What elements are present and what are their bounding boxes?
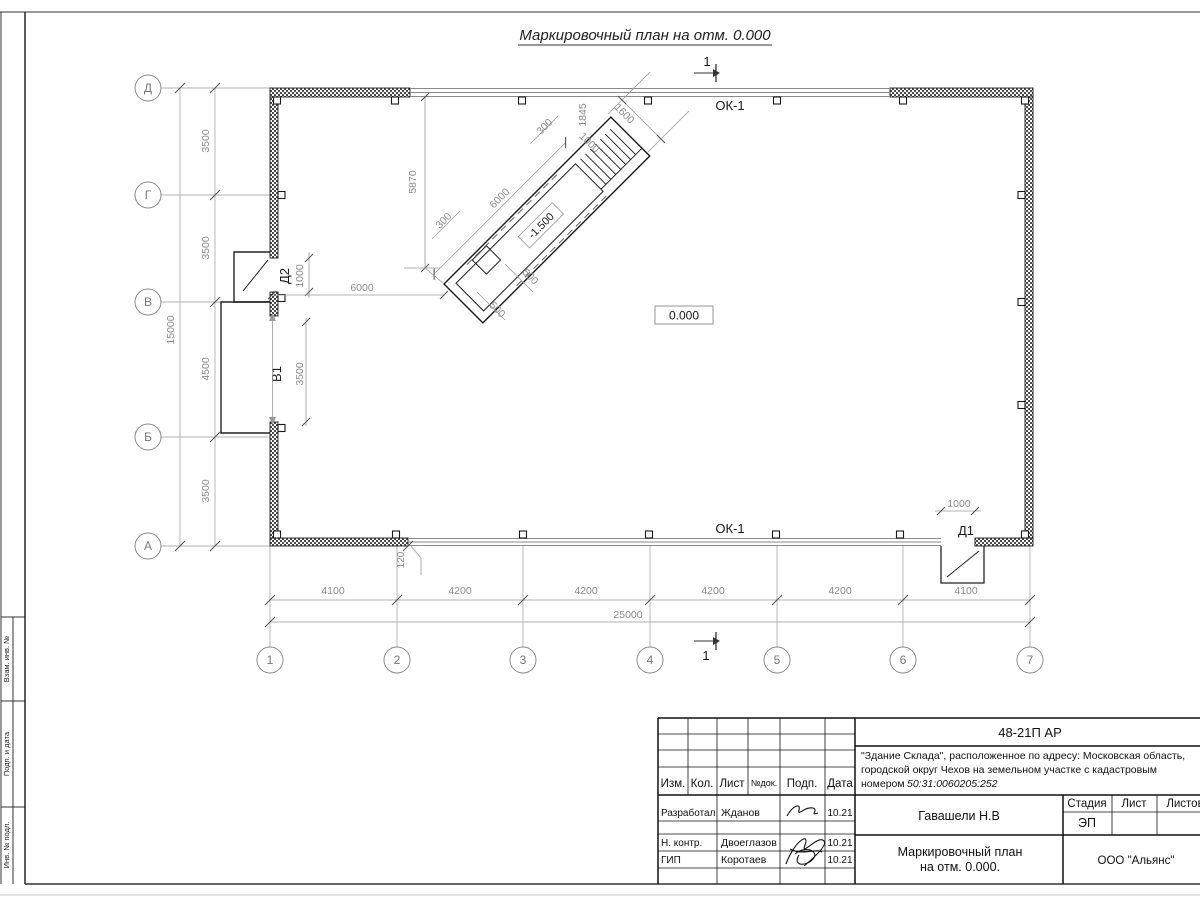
- dim-left-2: 3500: [200, 236, 212, 260]
- signature-gip: [786, 839, 825, 866]
- tb-row2-role: Н. контр.: [661, 838, 702, 849]
- tb-row1-name: Жданов: [721, 807, 760, 819]
- tb-approver: Гавашели Н.В: [918, 809, 1000, 823]
- side-label-inv: Инв. № подл.: [2, 822, 11, 869]
- axis-label-5: 5: [774, 653, 781, 667]
- tb-row1-date: 10.21: [827, 808, 852, 819]
- axis-label-g: Г: [145, 188, 152, 202]
- tb-drawing-title-2: на отм. 0.000.: [920, 860, 1000, 874]
- tb-row3-name: Коротаев: [721, 854, 767, 866]
- tb-stage-label: Стадия: [1067, 798, 1106, 810]
- axis-lines-cols: [270, 546, 1030, 647]
- tb-document-code: 48-21П АР: [998, 725, 1062, 740]
- tb-row2-name: Двоеглазов: [721, 837, 777, 849]
- tb-row3-date: 10.21: [827, 855, 852, 866]
- axis-label-2: 2: [394, 653, 401, 667]
- axis-label-6: 6: [900, 653, 907, 667]
- dim-bottom-5: 4200: [828, 585, 852, 597]
- side-label-podp: Подп. и дата: [2, 731, 11, 776]
- page-title: Маркировочный план на отм. 0.000: [519, 27, 771, 44]
- tb-header-data: Дата: [827, 778, 853, 790]
- axis-bubbles-rows: [135, 75, 161, 559]
- axis-label-3: 3: [520, 653, 527, 667]
- dim-ramp-run: 1845: [577, 103, 589, 127]
- dim-door2: 1000: [294, 264, 306, 288]
- tb-sheets-label: Листов: [1166, 798, 1200, 810]
- tb-header-izm: Изм.: [661, 778, 686, 790]
- dim-left-1: 3500: [200, 129, 212, 153]
- level-mark: 0.000: [655, 306, 713, 324]
- drawing-sheet: Взам. инв. № Подп. и дата Инв. № подл. М…: [0, 0, 1200, 900]
- tb-sheet-label: Лист: [1122, 798, 1148, 810]
- dim-ramp-side-bottom: 300: [433, 210, 454, 231]
- dim-opening-v1: 3500: [294, 362, 306, 386]
- dim-ramp-side-top: 300: [534, 116, 555, 137]
- dim-door2-lines: [305, 252, 313, 298]
- tb-stage-value: ЭП: [1078, 816, 1096, 830]
- axis-label-1: 1: [267, 653, 274, 667]
- window-label-top: ОК-1: [715, 98, 744, 113]
- dim-ramp-to-wall: 6000: [350, 282, 374, 294]
- axis-label-4: 4: [647, 653, 654, 667]
- svg-text:1: 1: [702, 648, 709, 663]
- tb-header-ndok: №док.: [751, 778, 777, 788]
- porch-left: [221, 252, 270, 433]
- dim-bottom-4: 4200: [701, 585, 725, 597]
- walls: [270, 88, 1033, 546]
- tb-row2-date: 10.21: [827, 838, 852, 849]
- dim-bottom-1: 4100: [321, 585, 345, 597]
- ramp-structure: -1.500 6000: [422, 98, 650, 326]
- signature-razrabotal: [787, 806, 818, 816]
- dim-door1: 1000: [947, 498, 971, 510]
- axis-label-7: 7: [1027, 653, 1034, 667]
- tb-header-list: Лист: [720, 778, 746, 790]
- tb-row1-role: Разработал: [661, 807, 716, 819]
- window-label-bottom: ОК-1: [715, 521, 744, 536]
- marking-plan-drawing: Взам. инв. № Подп. и дата Инв. № подл. М…: [0, 0, 1200, 900]
- tb-desc-line3-prefix: номером: [861, 778, 905, 790]
- door1-label: Д1: [958, 523, 974, 538]
- axis-label-b: Б: [144, 430, 152, 444]
- dim-bottom-6: 4100: [954, 585, 978, 597]
- dim-bottom-total: 25000: [613, 609, 642, 621]
- tb-drawing-title-1: Маркировочный план: [898, 845, 1023, 859]
- door1-swing: [947, 551, 979, 577]
- section-mark-bottom: 1: [694, 632, 720, 663]
- tb-desc-line2: городской округ Чехов на земельном участ…: [861, 764, 1157, 776]
- axis-lines-rows: [161, 88, 272, 546]
- door2-label: Д2: [277, 268, 292, 284]
- tb-header-kol: Кол.: [691, 778, 714, 790]
- opening-v1-label: В1: [269, 366, 284, 382]
- axis-label-a: А: [144, 539, 152, 553]
- tb-header-podp: Подп.: [787, 778, 818, 790]
- dim-ramp-length: 6000: [487, 186, 512, 211]
- svg-text:1: 1: [703, 54, 710, 69]
- dim-left-3: 4500: [200, 357, 212, 381]
- door2-swing: [243, 260, 268, 291]
- tb-company: ООО "Альянс": [1098, 855, 1175, 867]
- dim-left-4: 3500: [200, 479, 212, 503]
- axis-label-v: В: [144, 295, 152, 309]
- dim-ramp-to-axis: 5870: [407, 170, 419, 194]
- side-label-vzam: Взам. инв. №: [2, 636, 11, 682]
- axis-label-d: Д: [144, 81, 152, 95]
- dim-bottom-2: 4200: [448, 585, 472, 597]
- dim-wall-offset: 120: [396, 551, 407, 568]
- tb-row3-role: ГИП: [661, 855, 681, 866]
- column-markers: [274, 97, 1029, 538]
- section-mark-top: 1: [694, 54, 720, 82]
- dim-bottom-3: 4200: [574, 585, 598, 597]
- svg-text:0.000: 0.000: [669, 309, 699, 323]
- dim-left-total: 15000: [165, 315, 177, 344]
- tb-desc-line1: "Здание Склада", расположенное по адресу…: [861, 750, 1185, 762]
- tb-desc-line3-number: 50:31:0060205:252: [907, 778, 998, 790]
- axis-row-ticks: [175, 83, 220, 551]
